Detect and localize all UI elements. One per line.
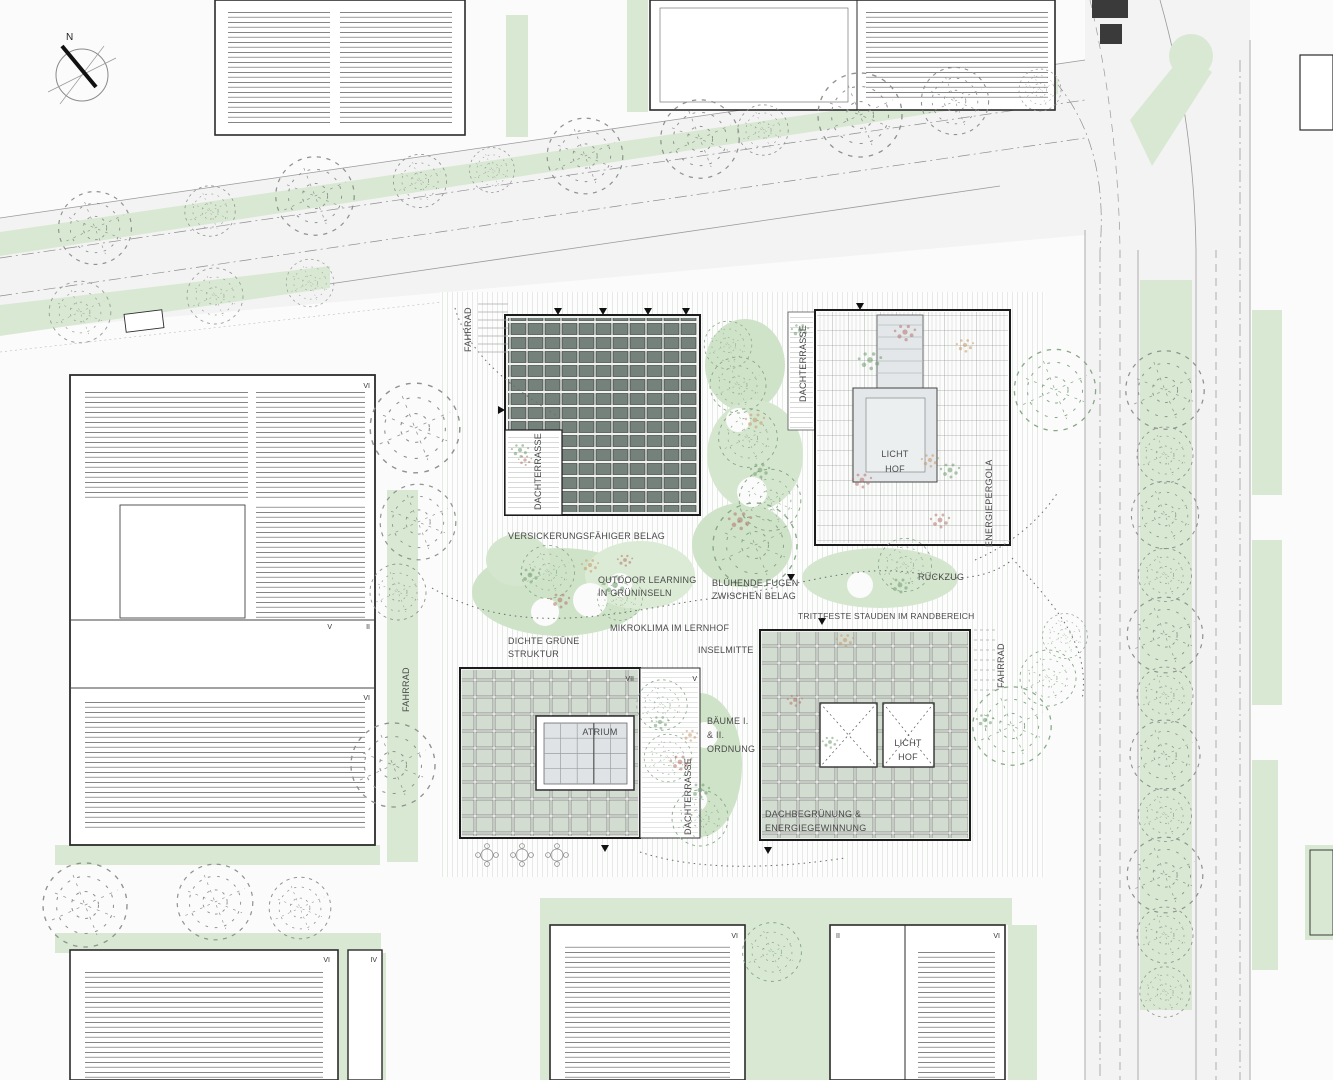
label-dichte-2: STRUKTUR — [508, 649, 559, 659]
label-lichthof-south-2: HOF — [898, 752, 918, 762]
label-dichte-1: DICHTE GRÜNE — [508, 636, 580, 646]
north-compass: N — [48, 32, 116, 104]
label-versickerung: VERSICKERUNGSFÄHIGER BELAG — [508, 531, 665, 541]
compass-needle — [62, 46, 96, 87]
label-fahrrad-west: FAHRRAD — [401, 667, 411, 712]
label-inselmitte: INSELMITTE — [698, 645, 754, 655]
numeral-left-mid-b: II — [366, 624, 370, 631]
label-fahrrad-northwest: FAHRRAD — [463, 307, 473, 352]
numeral-bottomleft-a: VI — [323, 957, 330, 964]
building-bottom-right — [830, 925, 1005, 1080]
building-atrium — [460, 668, 640, 838]
north-label: N — [66, 32, 73, 43]
numeral-bottomleft-b: IV — [370, 957, 377, 964]
label-lichthof-south-1: LICHT — [894, 738, 922, 748]
label-baeume-2: & II. — [707, 730, 724, 740]
numeral-atrium-building: VII — [625, 676, 634, 683]
label-dachterrasse-terrace: DACHTERRASSE — [683, 758, 693, 835]
label-trittfeste: TRITTFESTE STAUDEN IM RANDBEREICH — [798, 611, 974, 621]
building-top-center — [215, 0, 465, 135]
building-lichthof-north — [788, 303, 1010, 545]
label-bluehende-1: BLÜHENDE FUGEN — [712, 578, 799, 588]
label-outdoor-learning-2: IN GRÜNINSELN — [598, 588, 672, 598]
label-lichthof-north-1: LICHT — [881, 449, 909, 459]
numeral-left-mid-a: V — [327, 624, 332, 631]
numeral-bottomcenter: VI — [731, 933, 738, 940]
building-top-right — [650, 0, 1055, 110]
label-dachbegruenung-1: DACHBEGRÜNUNG & — [765, 809, 861, 819]
building-bottom-left — [70, 950, 382, 1080]
label-dachterrasse-solar: DACHTERRASSE — [533, 433, 543, 510]
label-baeume-3: ORDNUNG — [707, 744, 755, 754]
label-lichthof-north-2: HOF — [885, 464, 905, 474]
label-fahrrad-east: FAHRRAD — [996, 643, 1006, 688]
label-atrium: ATRIUM — [582, 727, 617, 737]
site-plan-drawing: N VERSICKERUNGSFÄHIGER BELAG OUTDOOR LEA… — [0, 0, 1333, 1080]
site-plan: N VERSICKERUNGSFÄHIGER BELAG OUTDOOR LEA… — [0, 0, 1333, 1080]
label-baeume-1: BÄUME I. — [707, 716, 749, 726]
label-dachbegruenung-2: ENERGIEGEWINNUNG — [765, 823, 867, 833]
building-lichthof-south — [760, 630, 970, 854]
building-solar-roof — [498, 308, 700, 515]
courtyard-x-west — [820, 703, 877, 767]
building-bottom-center — [550, 925, 745, 1080]
label-energiepergola: ENERGIEPERGOLA — [984, 459, 994, 547]
label-dachterrasse-north: DACHTERRASSE — [798, 325, 808, 402]
numeral-left-top: VI — [363, 383, 370, 390]
numeral-terrace-strip: V — [692, 676, 697, 683]
numeral-left-low: VI — [363, 695, 370, 702]
south-lawn — [540, 898, 1012, 925]
label-bluehende-2: ZWISCHEN BELAG — [712, 591, 796, 601]
label-mikroklima: MIKROKLIMA IM LERNHOF — [610, 623, 730, 633]
numeral-bottomright-a: II — [836, 933, 840, 940]
label-rueckzug: RÜCKZUG — [918, 572, 964, 582]
building-left-complex — [70, 375, 375, 845]
numeral-bottomright-b: VI — [993, 933, 1000, 940]
label-outdoor-learning-1: OUTDOOR LEARNING — [598, 575, 697, 585]
edge-structure — [1092, 0, 1128, 18]
